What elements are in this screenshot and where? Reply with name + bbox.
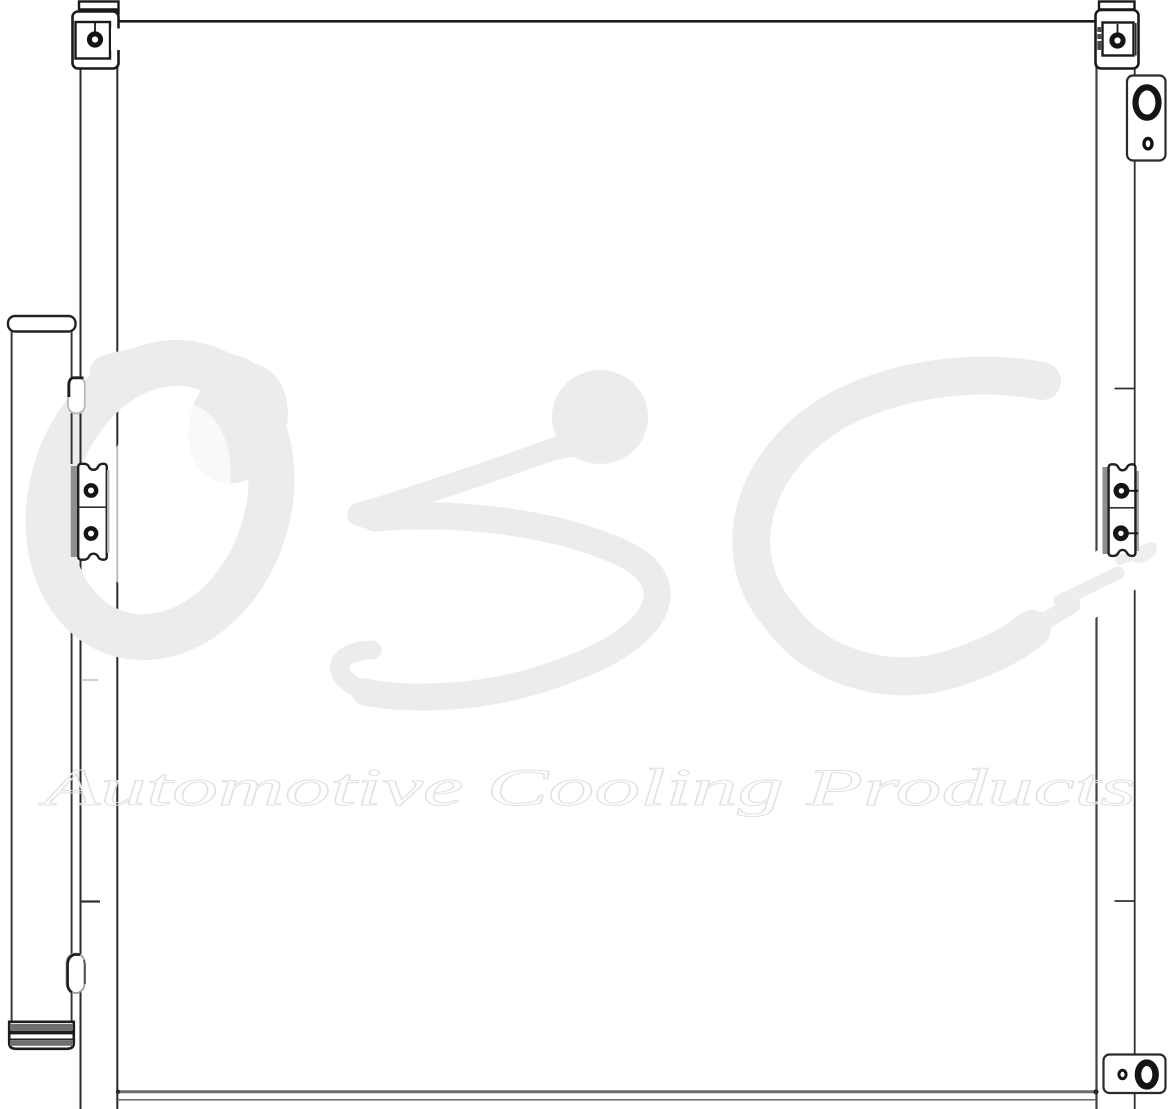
svg-text:Automotive Cooling Products: Automotive Cooling Products [39,759,1136,817]
